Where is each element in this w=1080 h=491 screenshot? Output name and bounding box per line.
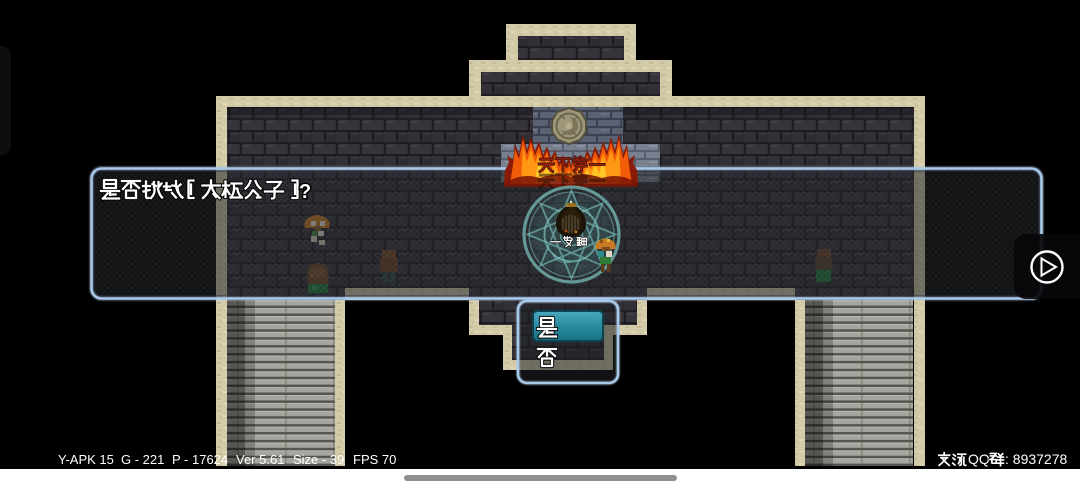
svg-text:QQ: QQ [968,451,990,467]
svg-text:Size - 39: Size - 39 [293,452,344,467]
svg-text:?: ? [299,181,311,203]
svg-text:: 8937278: : 8937278 [1005,451,1067,467]
svg-text:Ver 5.61: Ver 5.61 [236,452,284,467]
svg-text:P - 17624: P - 17624 [172,452,228,467]
svg-text:Y-APK 15: Y-APK 15 [58,452,114,467]
svg-text:G - 221: G - 221 [121,452,164,467]
svg-text:FPS 70: FPS 70 [353,452,396,467]
